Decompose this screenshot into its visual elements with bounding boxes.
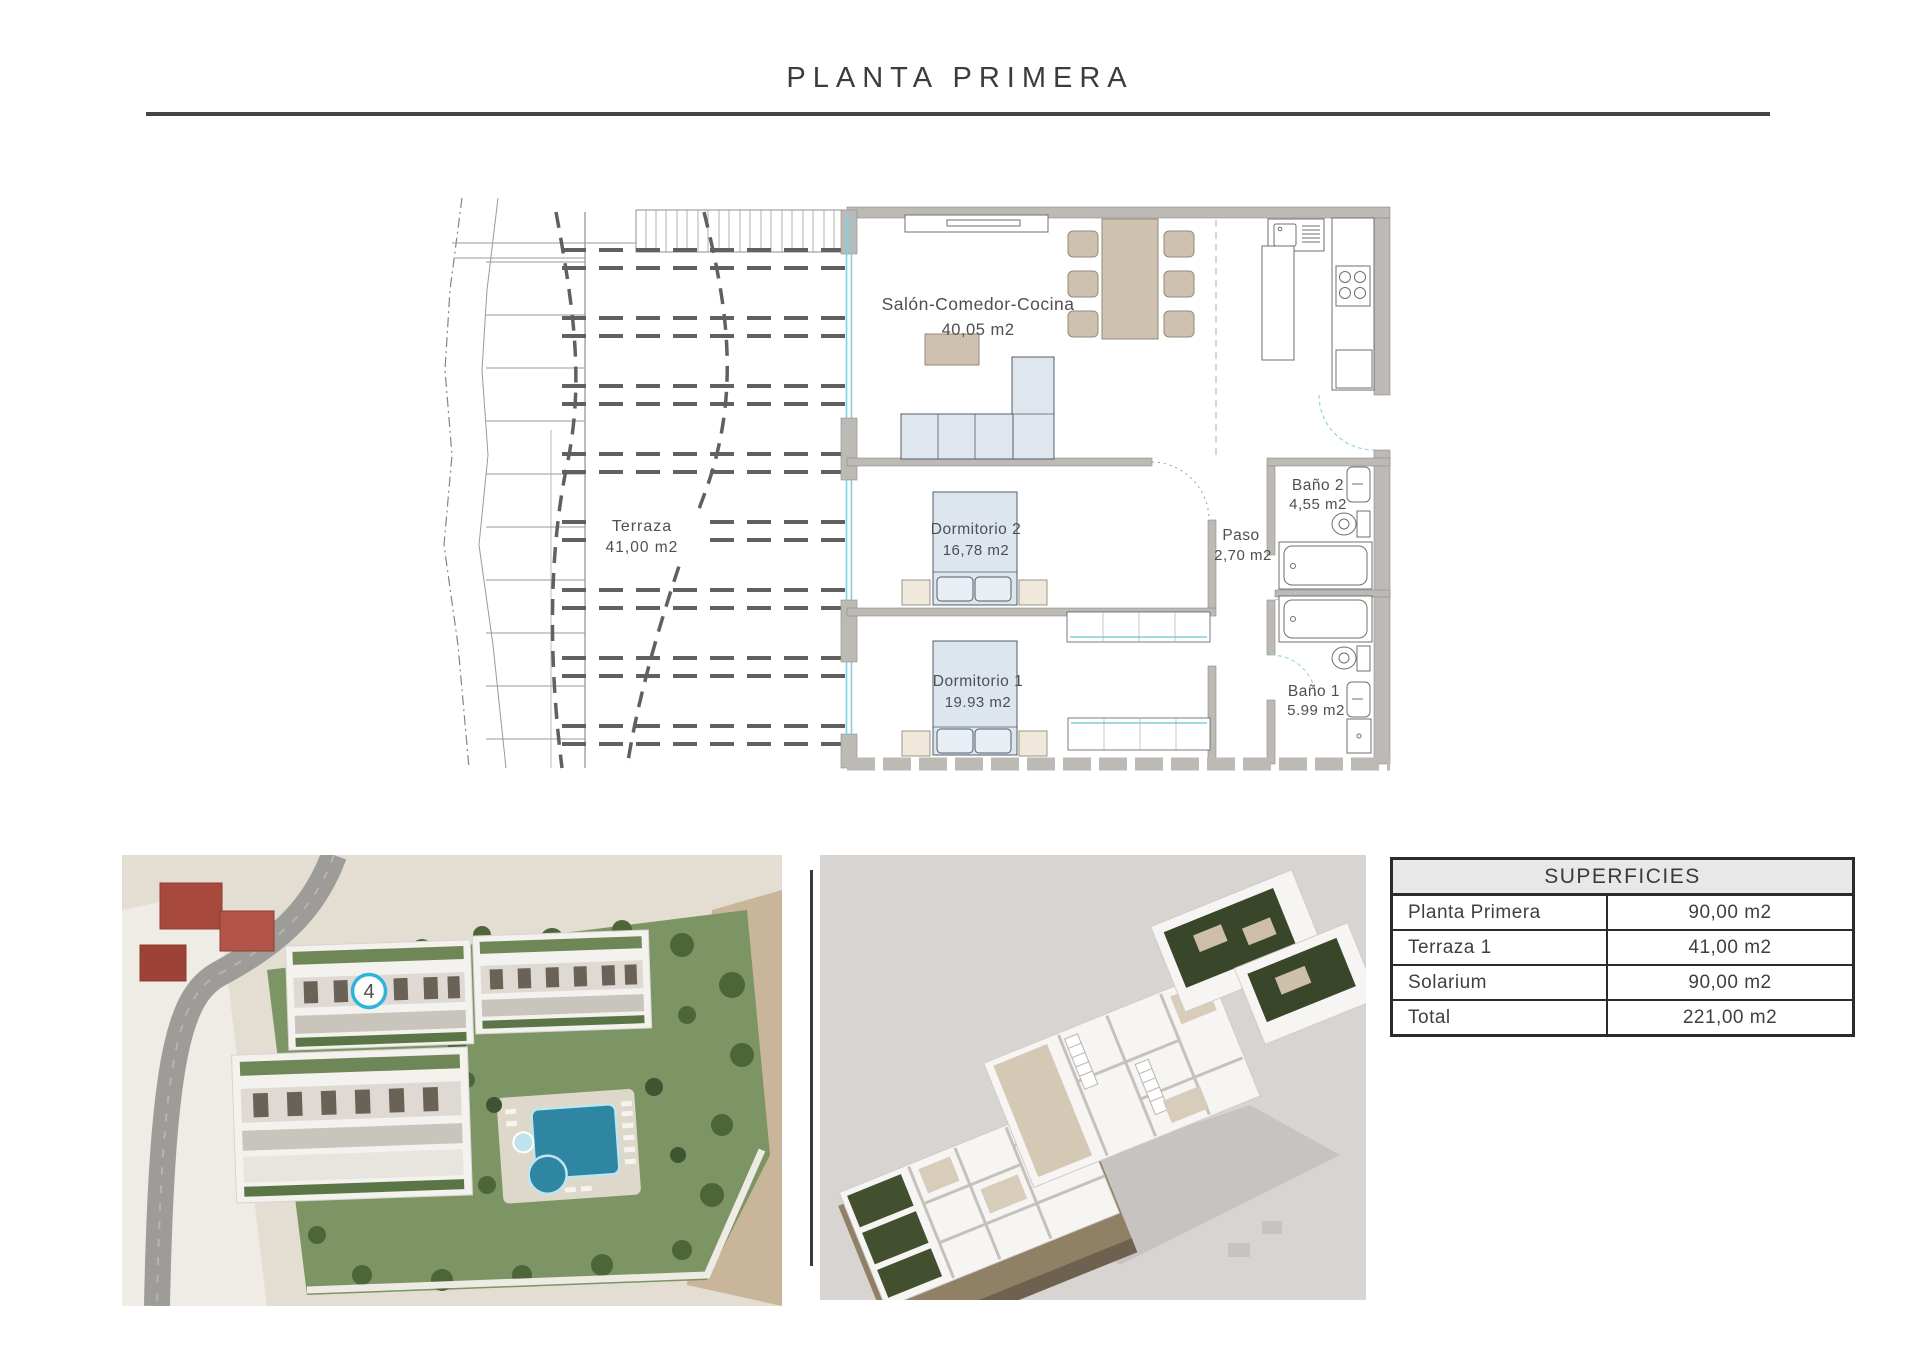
pillow [975, 729, 1011, 753]
pillow [937, 577, 973, 601]
sink-icon [1274, 224, 1296, 246]
page-title: PLANTA PRIMERA [0, 62, 1920, 95]
row-label: Solarium [1393, 966, 1608, 999]
table-row: Terraza 1 41,00 m2 [1393, 931, 1852, 966]
bedroom-2: Dormitorio 2 16,78 m2 [902, 492, 1047, 605]
entrance-door-arc [1319, 395, 1374, 450]
bedroom-1: Dormitorio 1 19.93 m2 [902, 641, 1047, 756]
hall-area-label: 2,70 m2 [1214, 547, 1272, 564]
photo-divider [810, 870, 813, 1266]
bedroom1-label: Dormitorio 1 [933, 673, 1023, 690]
overhang-edge-line [552, 212, 575, 768]
row-label: Planta Primera [1393, 896, 1608, 929]
nightstand [1019, 580, 1047, 605]
salon-label: Salón-Comedor-Cocina [882, 294, 1075, 314]
pool-area [496, 1089, 641, 1204]
hall-label: Paso [1222, 527, 1259, 544]
render-3d [820, 855, 1366, 1300]
oven-icon [1336, 350, 1372, 388]
pillow [937, 729, 973, 753]
tv-icon [947, 220, 1020, 226]
table-row: Solarium 90,00 m2 [1393, 966, 1852, 1001]
unit-badge: 4 [353, 975, 386, 1008]
terraza-area: Terraza 41,00 m2 [444, 198, 845, 768]
bath1-label: Baño 1 [1288, 683, 1340, 700]
hatched-strip [636, 210, 845, 252]
page: { "page": { "title": "PLANTA PRIMERA" },… [0, 0, 1920, 1357]
badge-number: 4 [363, 981, 374, 1003]
pillow [975, 577, 1011, 601]
floor-plan: Terraza 41,00 m2 [430, 190, 1400, 780]
row-value: 41,00 m2 [1608, 931, 1852, 964]
row-value: 90,00 m2 [1608, 966, 1852, 999]
terrain-boundary-line-2 [479, 198, 506, 768]
table-row: Total 221,00 m2 [1393, 1001, 1852, 1034]
bedroom2-label: Dormitorio 2 [931, 521, 1021, 538]
sofa [901, 357, 1054, 459]
hall-door-arc [1152, 462, 1209, 520]
kitchen-peninsula [1262, 246, 1294, 360]
dining-table [1102, 219, 1158, 339]
terraza-label: Terraza [612, 518, 672, 535]
bedroom1-area-label: 19.93 m2 [945, 694, 1012, 711]
superficies-table: SUPERFICIES Planta Primera 90,00 m2 Terr… [1390, 857, 1855, 1037]
terrain-boundary-line [444, 198, 469, 768]
row-value: 90,00 m2 [1608, 896, 1852, 929]
toilet-tank [1357, 646, 1370, 671]
bath1-area-label: 5.99 m2 [1287, 702, 1345, 719]
wardrobes [1067, 612, 1210, 750]
toilet-tank [1357, 511, 1370, 537]
stove-icon [1336, 266, 1370, 306]
bedroom2-area-label: 16,78 m2 [943, 542, 1010, 559]
nightstand [902, 580, 930, 605]
living-room: Salón-Comedor-Cocina 40,05 m2 [882, 215, 1194, 459]
table-header: SUPERFICIES [1393, 860, 1852, 896]
kitchen [1216, 218, 1374, 455]
nightstand [902, 731, 930, 756]
nightstand [1019, 731, 1047, 756]
salon-area-label: 40,05 m2 [942, 321, 1015, 339]
bath2-label: Baño 2 [1292, 477, 1344, 494]
row-value: 221,00 m2 [1608, 1001, 1852, 1034]
row-label: Total [1393, 1001, 1608, 1034]
title-rule [146, 112, 1770, 116]
spa-circle [513, 1132, 534, 1153]
building-block-c [231, 1047, 472, 1203]
table-row: Planta Primera 90,00 m2 [1393, 896, 1852, 931]
row-label: Terraza 1 [1393, 931, 1608, 964]
site-aerial-photo: 4 [122, 855, 782, 1306]
bath2-area-label: 4,55 m2 [1289, 496, 1347, 513]
overhang-edge-line-2 [627, 212, 727, 768]
terraza-area-label: 41,00 m2 [606, 539, 679, 556]
building-block-b [472, 930, 651, 1034]
